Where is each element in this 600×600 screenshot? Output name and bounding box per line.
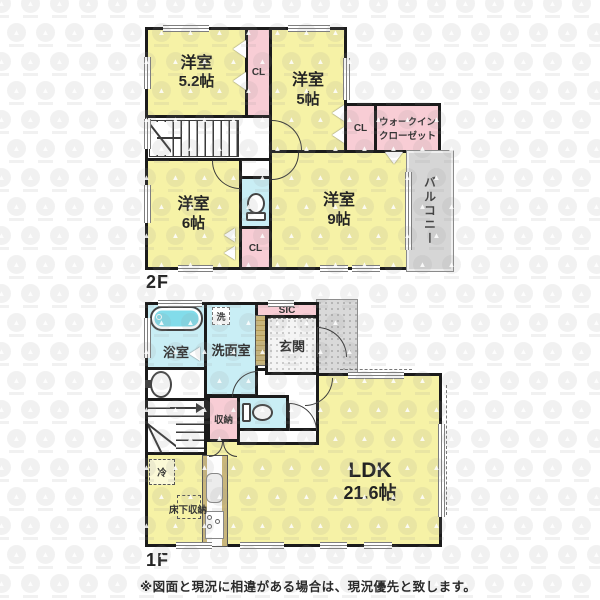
- watermark-text-bar: [531, 218, 546, 221]
- watermark-logo-icon: ▲: [413, 23, 432, 42]
- watermark-text-bar: [255, 595, 270, 598]
- watermark-text-bar: [67, 566, 82, 569]
- watermark-text-bar: [0, 131, 9, 134]
- watermark-logo-icon: ▲: [297, 545, 316, 564]
- watermark-logo-icon: ▲: [529, 23, 548, 42]
- watermark-logo-icon: ▲: [94, 81, 113, 100]
- watermark-text-bar: [9, 508, 24, 511]
- watermark-text-bar: [9, 334, 24, 337]
- watermark-text-bar: [67, 392, 82, 395]
- watermark-text-bar: [0, 421, 9, 424]
- window: [320, 265, 348, 272]
- watermark-text-bar: [371, 363, 386, 366]
- watermark-logo-icon: ▲: [529, 255, 548, 274]
- watermark-text-bar: [487, 537, 502, 540]
- watermark-logo-icon: ▲: [442, 23, 461, 42]
- watermark-text-bar: [67, 508, 82, 511]
- window: [288, 25, 330, 32]
- watermark-text-bar: [52, 479, 67, 482]
- watermark-text-bar: [38, 508, 53, 511]
- watermark-text-bar: [531, 566, 546, 569]
- floor-label-2f: 2F: [146, 272, 169, 293]
- watermark-text-bar: [502, 160, 517, 163]
- watermark-text-bar: [444, 566, 459, 569]
- toilet-tank-1f-icon: [242, 403, 251, 422]
- watermark-logo-icon: ▲: [500, 487, 519, 506]
- watermark-logo-icon: ▲: [413, 545, 432, 564]
- watermark-logo-icon: ▲: [21, 400, 40, 419]
- watermark-text-bar: [531, 392, 546, 395]
- watermark-text-bar: [110, 247, 125, 250]
- watermark-text-bar: [444, 102, 459, 105]
- watermark-logo-icon: ▲: [442, 371, 461, 390]
- watermark-logo-icon: ▲: [65, 429, 84, 448]
- watermark-logo-icon: ▲: [529, 313, 548, 332]
- watermark-text-bar: [589, 334, 600, 337]
- watermark-logo-icon: ▲: [572, 458, 591, 477]
- washbasin-icon: [150, 371, 172, 398]
- watermark-logo-icon: ▲: [108, 52, 127, 71]
- balcony-sliding-door: [405, 172, 412, 250]
- watermark-text-bar: [197, 15, 212, 18]
- window: [176, 542, 212, 549]
- watermark-text-bar: [9, 276, 24, 279]
- watermark-text-bar: [473, 102, 488, 105]
- watermark-logo-icon: ▲: [108, 574, 127, 593]
- sic-dashed-line: [268, 318, 316, 319]
- watermark-text-bar: [9, 102, 24, 105]
- genkan-label: 玄関: [279, 336, 305, 355]
- watermark-text-bar: [560, 334, 575, 337]
- watermark-text-bar: [125, 44, 140, 47]
- watermark-text-bar: [23, 189, 38, 192]
- watermark-text-bar: [81, 421, 96, 424]
- window: [348, 372, 404, 379]
- watermark-text-bar: [458, 421, 473, 424]
- watermark-text-bar: [545, 363, 560, 366]
- watermark-text-bar: [96, 334, 111, 337]
- watermark-logo-icon: ▲: [456, 52, 475, 71]
- watermark-text-bar: [386, 276, 401, 279]
- watermark-text-bar: [284, 15, 299, 18]
- watermark-logo-icon: ▲: [514, 168, 533, 187]
- watermark-logo-icon: ▲: [369, 342, 388, 361]
- watermark-text-bar: [589, 566, 600, 569]
- watermark-text-bar: [357, 276, 372, 279]
- walk-in-closet-2f: ウォークイン クローゼット: [374, 103, 441, 153]
- watermark-logo-icon: ▲: [224, 0, 243, 13]
- watermark-text-bar: [516, 131, 531, 134]
- washroom-label: 洗面室: [211, 340, 250, 359]
- watermark-logo-icon: ▲: [50, 52, 69, 71]
- watermark-text-bar: [400, 73, 415, 76]
- watermark-logo-icon: ▲: [543, 284, 562, 303]
- watermark-text-bar: [386, 44, 401, 47]
- watermark-logo-icon: ▲: [0, 110, 11, 129]
- watermark-text-bar: [429, 73, 444, 76]
- watermark-logo-icon: ▲: [529, 81, 548, 100]
- watermark-logo-icon: ▲: [65, 545, 84, 564]
- watermark-text-bar: [516, 189, 531, 192]
- watermark-text-bar: [357, 44, 372, 47]
- watermark-logo-icon: ▲: [456, 400, 475, 419]
- watermark-text-bar: [168, 15, 183, 18]
- watermark-text-bar: [52, 15, 67, 18]
- watermark-logo-icon: ▲: [558, 139, 577, 158]
- watermark-text-bar: [9, 44, 24, 47]
- watermark-logo-icon: ▲: [572, 52, 591, 71]
- closet-2f-right-label: CL: [354, 123, 367, 134]
- watermark-text-bar: [125, 508, 140, 511]
- stove-burner-icon: [207, 524, 212, 529]
- watermark-logo-icon: ▲: [572, 284, 591, 303]
- watermark-logo-icon: ▲: [253, 0, 272, 13]
- watermark-text-bar: [52, 421, 67, 424]
- watermark-text-bar: [357, 334, 372, 337]
- watermark-logo-icon: ▲: [442, 313, 461, 332]
- watermark-logo-icon: ▲: [123, 255, 142, 274]
- watermark-text-bar: [473, 218, 488, 221]
- closet-2f-mid-label: CL: [249, 243, 262, 254]
- kitchen-sink-icon: [206, 473, 223, 503]
- watermark-logo-icon: ▲: [485, 226, 504, 245]
- watermark-logo-icon: ▲: [471, 313, 490, 332]
- watermark-logo-icon: ▲: [442, 81, 461, 100]
- watermark-text-bar: [125, 276, 140, 279]
- watermark-text-bar: [23, 537, 38, 540]
- watermark-logo-icon: ▲: [7, 371, 26, 390]
- watermark-text-bar: [226, 595, 241, 598]
- watermark-logo-icon: ▲: [50, 110, 69, 129]
- watermark-logo-icon: ▲: [485, 458, 504, 477]
- watermark-text-bar: [574, 595, 589, 598]
- watermark-logo-icon: ▲: [108, 516, 127, 535]
- watermark-logo-icon: ▲: [543, 0, 562, 13]
- window: [352, 265, 380, 272]
- watermark-logo-icon: ▲: [50, 226, 69, 245]
- watermark-logo-icon: ▲: [65, 23, 84, 42]
- watermark-logo-icon: ▲: [572, 400, 591, 419]
- watermark-text-bar: [386, 334, 401, 337]
- watermark-logo-icon: ▲: [587, 429, 600, 448]
- watermark-text-bar: [487, 189, 502, 192]
- watermark-text-bar: [589, 450, 600, 453]
- watermark-text-bar: [52, 131, 67, 134]
- watermark-text-bar: [502, 566, 517, 569]
- watermark-text-bar: [371, 595, 386, 598]
- watermark-text-bar: [458, 363, 473, 366]
- watermark-logo-icon: ▲: [514, 342, 533, 361]
- watermark-logo-icon: ▲: [50, 0, 69, 13]
- watermark-logo-icon: ▲: [36, 371, 55, 390]
- watermark-text-bar: [38, 566, 53, 569]
- watermark-text-bar: [473, 566, 488, 569]
- watermark-text-bar: [516, 595, 531, 598]
- watermark-text-bar: [574, 479, 589, 482]
- watermark-text-bar: [125, 334, 140, 337]
- watermark-text-bar: [487, 73, 502, 76]
- room-2f-5-name: 洋室: [292, 71, 324, 90]
- watermark-logo-icon: ▲: [108, 284, 127, 303]
- watermark-text-bar: [96, 160, 111, 163]
- watermark-logo-icon: ▲: [587, 545, 600, 564]
- watermark-logo-icon: ▲: [94, 313, 113, 332]
- watermark-text-bar: [38, 334, 53, 337]
- watermark-logo-icon: ▲: [0, 574, 11, 593]
- watermark-logo-icon: ▲: [572, 168, 591, 187]
- watermark-text-bar: [0, 73, 9, 76]
- watermark-text-bar: [560, 392, 575, 395]
- watermark-logo-icon: ▲: [587, 81, 600, 100]
- watermark-logo-icon: ▲: [50, 284, 69, 303]
- watermark-logo-icon: ▲: [65, 255, 84, 274]
- watermark-logo-icon: ▲: [456, 284, 475, 303]
- watermark-text-bar: [110, 15, 125, 18]
- watermark-text-bar: [531, 334, 546, 337]
- watermark-text-bar: [96, 508, 111, 511]
- watermark-logo-icon: ▲: [587, 313, 600, 332]
- stairs-1f-arrow-head: [196, 403, 204, 413]
- watermark-text-bar: [125, 102, 140, 105]
- watermark-logo-icon: ▲: [282, 0, 301, 13]
- watermark-text-bar: [545, 73, 560, 76]
- watermark-text-bar: [342, 15, 357, 18]
- watermark-logo-icon: ▲: [108, 342, 127, 361]
- watermark-logo-icon: ▲: [485, 574, 504, 593]
- watermark-logo-icon: ▲: [0, 516, 11, 535]
- watermark-logo-icon: ▲: [529, 197, 548, 216]
- watermark-logo-icon: ▲: [558, 255, 577, 274]
- watermark-text-bar: [23, 15, 38, 18]
- watermark-logo-icon: ▲: [572, 342, 591, 361]
- watermark-text-bar: [458, 15, 473, 18]
- watermark-text-bar: [96, 218, 111, 221]
- watermark-logo-icon: ▲: [79, 168, 98, 187]
- watermark-logo-icon: ▲: [442, 545, 461, 564]
- watermark-logo-icon: ▲: [456, 342, 475, 361]
- closet-2f-top-label: CL: [252, 67, 265, 78]
- watermark-text-bar: [589, 392, 600, 395]
- watermark-logo-icon: ▲: [572, 226, 591, 245]
- watermark-text-bar: [458, 247, 473, 250]
- watermark-logo-icon: ▲: [587, 487, 600, 506]
- watermark-text-bar: [473, 276, 488, 279]
- window: [158, 300, 202, 307]
- underfloor-storage-label: 床下収納: [156, 502, 220, 516]
- watermark-logo-icon: ▲: [471, 81, 490, 100]
- watermark-text-bar: [110, 305, 125, 308]
- watermark-logo-icon: ▲: [7, 313, 26, 332]
- watermark-text-bar: [9, 218, 24, 221]
- watermark-logo-icon: ▲: [369, 0, 388, 13]
- storage-1f: 収納: [207, 395, 240, 442]
- stairs-2f-arrow: [157, 137, 181, 139]
- watermark-logo-icon: ▲: [398, 0, 417, 13]
- watermark-logo-icon: ▲: [36, 23, 55, 42]
- balcony-label: バルコニー: [422, 176, 439, 246]
- watermark-logo-icon: ▲: [485, 516, 504, 535]
- watermark-text-bar: [487, 247, 502, 250]
- watermark-text-bar: [589, 102, 600, 105]
- watermark-logo-icon: ▲: [471, 545, 490, 564]
- watermark-logo-icon: ▲: [108, 400, 127, 419]
- entrance-genkan: 玄関: [265, 315, 319, 375]
- watermark-logo-icon: ▲: [94, 197, 113, 216]
- watermark-text-bar: [183, 566, 198, 569]
- watermark-text-bar: [560, 102, 575, 105]
- watermark-text-bar: [487, 305, 502, 308]
- watermark-text-bar: [67, 102, 82, 105]
- watermark-logo-icon: ▲: [65, 139, 84, 158]
- watermark-text-bar: [545, 247, 560, 250]
- watermark-text-bar: [125, 450, 140, 453]
- ldk-label-group: LDK 21.6帖: [300, 458, 440, 505]
- watermark-logo-icon: ▲: [0, 458, 11, 477]
- watermark-text-bar: [415, 334, 430, 337]
- watermark-text-bar: [96, 276, 111, 279]
- watermark-logo-icon: ▲: [36, 487, 55, 506]
- wic-label-line2: クローゼット: [379, 128, 436, 142]
- watermark-logo-icon: ▲: [50, 516, 69, 535]
- room-2f-6-name: 洋室: [177, 195, 209, 214]
- watermark-logo-icon: ▲: [543, 226, 562, 245]
- watermark-text-bar: [67, 450, 82, 453]
- window: [320, 542, 347, 549]
- watermark-text-bar: [52, 595, 67, 598]
- watermark-logo-icon: ▲: [529, 429, 548, 448]
- bath-sliding-door-marker: [189, 347, 200, 361]
- watermark-logo-icon: ▲: [7, 23, 26, 42]
- watermark-logo-icon: ▲: [7, 545, 26, 564]
- watermark-logo-icon: ▲: [413, 81, 432, 100]
- watermark-logo-icon: ▲: [398, 284, 417, 303]
- watermark-text-bar: [502, 276, 517, 279]
- closet-door-marker: [332, 127, 344, 143]
- watermark-text-bar: [357, 566, 372, 569]
- watermark-text-bar: [23, 247, 38, 250]
- watermark-logo-icon: ▲: [108, 110, 127, 129]
- watermark-logo-icon: ▲: [7, 429, 26, 448]
- watermark-text-bar: [545, 421, 560, 424]
- watermark-text-bar: [574, 247, 589, 250]
- window: [178, 265, 213, 272]
- watermark-text-bar: [23, 363, 38, 366]
- watermark-logo-icon: ▲: [514, 110, 533, 129]
- watermark-logo-icon: ▲: [65, 371, 84, 390]
- watermark-text-bar: [96, 566, 111, 569]
- watermark-logo-icon: ▲: [94, 487, 113, 506]
- watermark-logo-icon: ▲: [108, 0, 127, 13]
- watermark-text-bar: [487, 595, 502, 598]
- wic-label-line1: ウォークイン: [379, 114, 436, 128]
- watermark-text-bar: [574, 189, 589, 192]
- watermark-text-bar: [23, 305, 38, 308]
- watermark-text-bar: [270, 566, 285, 569]
- watermark-text-bar: [0, 15, 9, 18]
- watermark-text-bar: [38, 102, 53, 105]
- watermark-text-bar: [110, 479, 125, 482]
- watermark-logo-icon: ▲: [0, 52, 11, 71]
- watermark-text-bar: [473, 160, 488, 163]
- watermark-text-bar: [444, 44, 459, 47]
- watermark-logo-icon: ▲: [485, 284, 504, 303]
- watermark-text-bar: [371, 15, 386, 18]
- watermark-text-bar: [0, 189, 9, 192]
- watermark-logo-icon: ▲: [0, 400, 11, 419]
- watermark-logo-icon: ▲: [21, 168, 40, 187]
- watermark-text-bar: [52, 189, 67, 192]
- watermark-logo-icon: ▲: [558, 545, 577, 564]
- watermark-text-bar: [81, 537, 96, 540]
- watermark-logo-icon: ▲: [21, 110, 40, 129]
- ldk-size: 21.6帖: [300, 483, 440, 505]
- refrigerator-spot: 冷: [149, 459, 175, 485]
- floorplan-canvas: 洋室 5.2帖 CL 洋室 5帖 洋室 6帖 洋室 9帖 CL CL ウォークイ…: [0, 0, 600, 600]
- closet-2f-right: CL: [344, 103, 377, 153]
- watermark-text-bar: [531, 44, 546, 47]
- watermark-logo-icon: ▲: [195, 0, 214, 13]
- watermark-text-bar: [502, 44, 517, 47]
- watermark-text-bar: [458, 131, 473, 134]
- disclaimer-text: ※図面と現況に相違がある場合は、現況優先と致します。: [140, 576, 470, 595]
- watermark-text-bar: [487, 363, 502, 366]
- window: [268, 300, 294, 307]
- watermark-text-bar: [81, 189, 96, 192]
- watermark-logo-icon: ▲: [7, 255, 26, 274]
- watermark-logo-icon: ▲: [543, 458, 562, 477]
- watermark-logo-icon: ▲: [471, 255, 490, 274]
- watermark-logo-icon: ▲: [456, 110, 475, 129]
- watermark-logo-icon: ▲: [36, 81, 55, 100]
- watermark-text-bar: [299, 276, 314, 279]
- watermark-logo-icon: ▲: [384, 23, 403, 42]
- watermark-text-bar: [502, 218, 517, 221]
- watermark-text-bar: [545, 537, 560, 540]
- watermark-text-bar: [574, 421, 589, 424]
- watermark-text-bar: [487, 15, 502, 18]
- watermark-text-bar: [502, 508, 517, 511]
- watermark-text-bar: [560, 450, 575, 453]
- watermark-text-bar: [502, 450, 517, 453]
- watermark-text-bar: [67, 218, 82, 221]
- watermark-text-bar: [9, 566, 24, 569]
- watermark-logo-icon: ▲: [123, 371, 142, 390]
- watermark-logo-icon: ▲: [79, 284, 98, 303]
- watermark-logo-icon: ▲: [529, 139, 548, 158]
- window: [343, 58, 350, 100]
- watermark-logo-icon: ▲: [500, 139, 519, 158]
- window: [144, 57, 151, 89]
- watermark-logo-icon: ▲: [36, 197, 55, 216]
- watermark-text-bar: [487, 421, 502, 424]
- window: [163, 25, 209, 32]
- watermark-text-bar: [560, 218, 575, 221]
- watermark-text-bar: [574, 537, 589, 540]
- watermark-logo-icon: ▲: [166, 0, 185, 13]
- watermark-logo-icon: ▲: [137, 0, 156, 13]
- watermark-text-bar: [96, 392, 111, 395]
- watermark-text-bar: [516, 537, 531, 540]
- watermark-logo-icon: ▲: [572, 110, 591, 129]
- watermark-logo-icon: ▲: [79, 458, 98, 477]
- watermark-logo-icon: ▲: [471, 371, 490, 390]
- watermark-text-bar: [52, 247, 67, 250]
- overhang-dashed-line: [340, 369, 412, 370]
- watermark-logo-icon: ▲: [514, 226, 533, 245]
- watermark-logo-icon: ▲: [7, 487, 26, 506]
- watermark-logo-icon: ▲: [123, 545, 142, 564]
- watermark-text-bar: [9, 392, 24, 395]
